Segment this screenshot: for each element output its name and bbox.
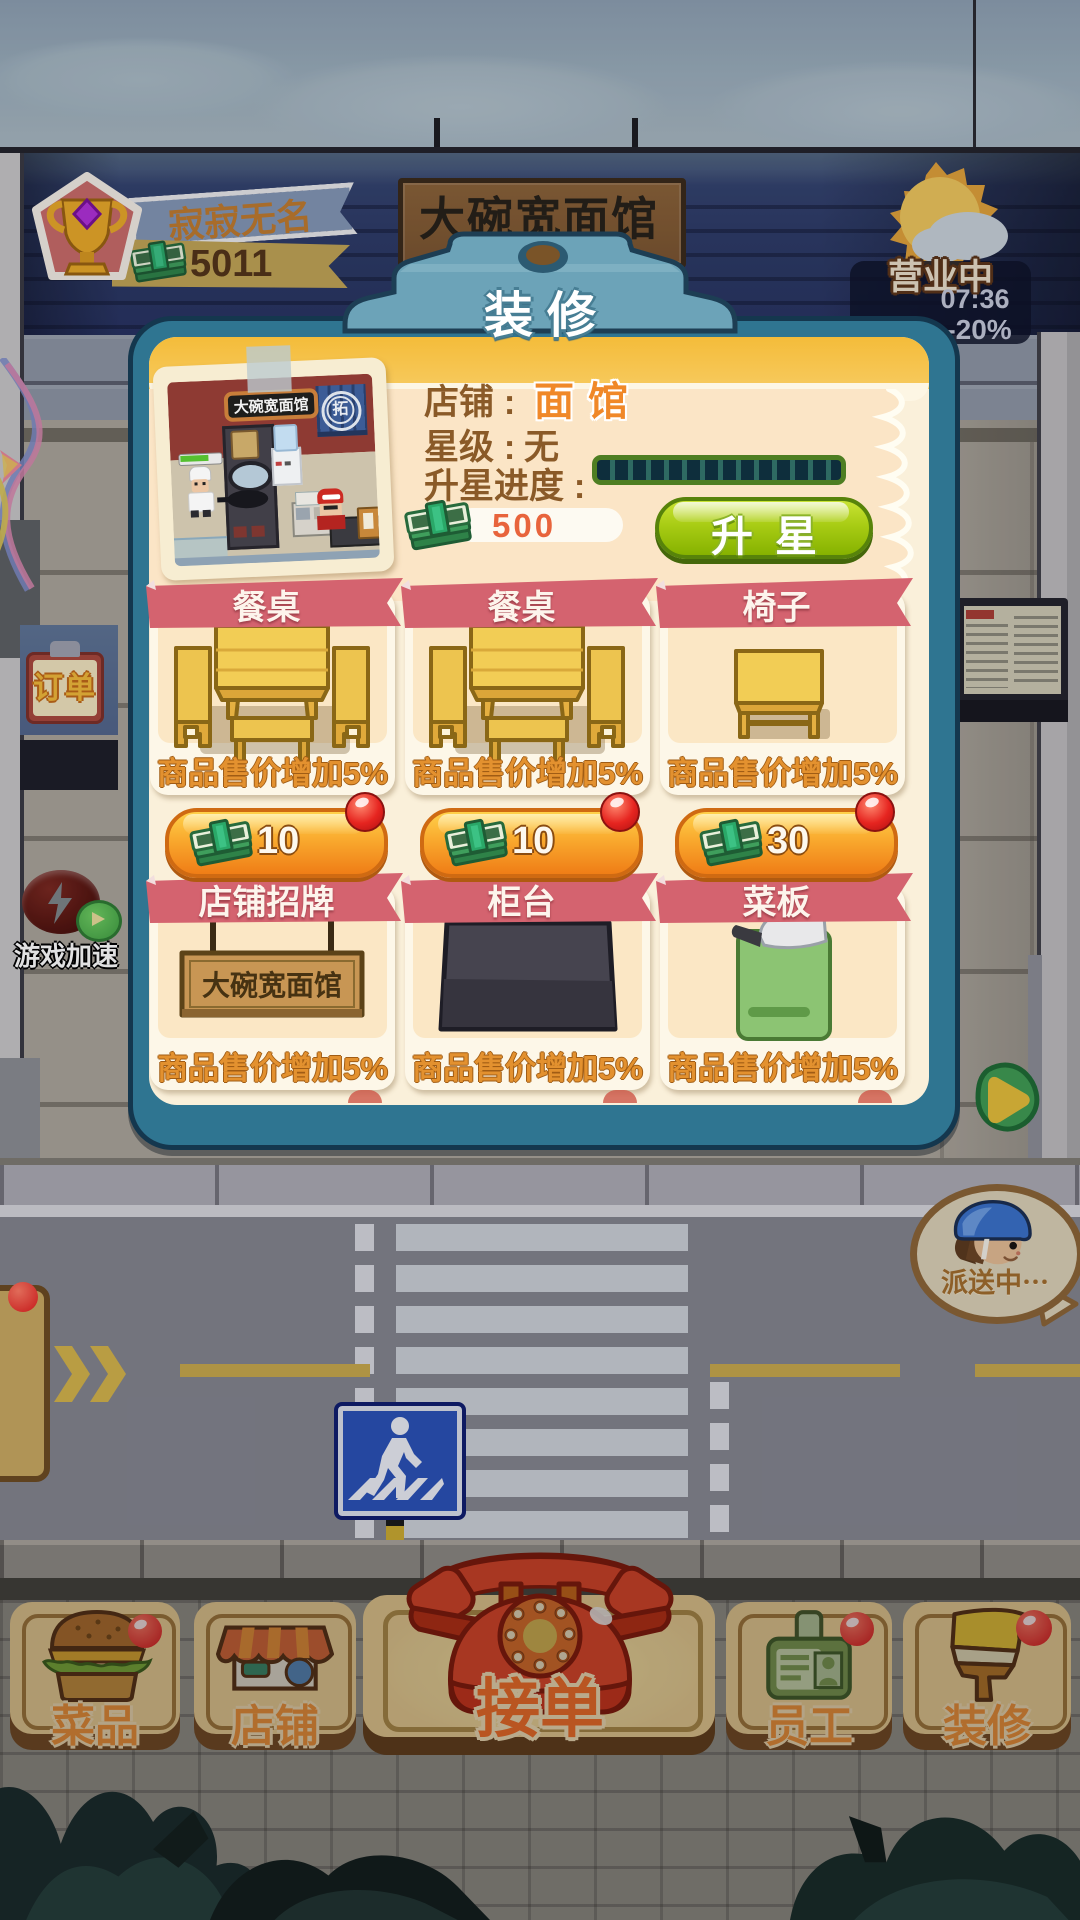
svg-text:大碗宽面馆: 大碗宽面馆 bbox=[202, 969, 342, 1001]
